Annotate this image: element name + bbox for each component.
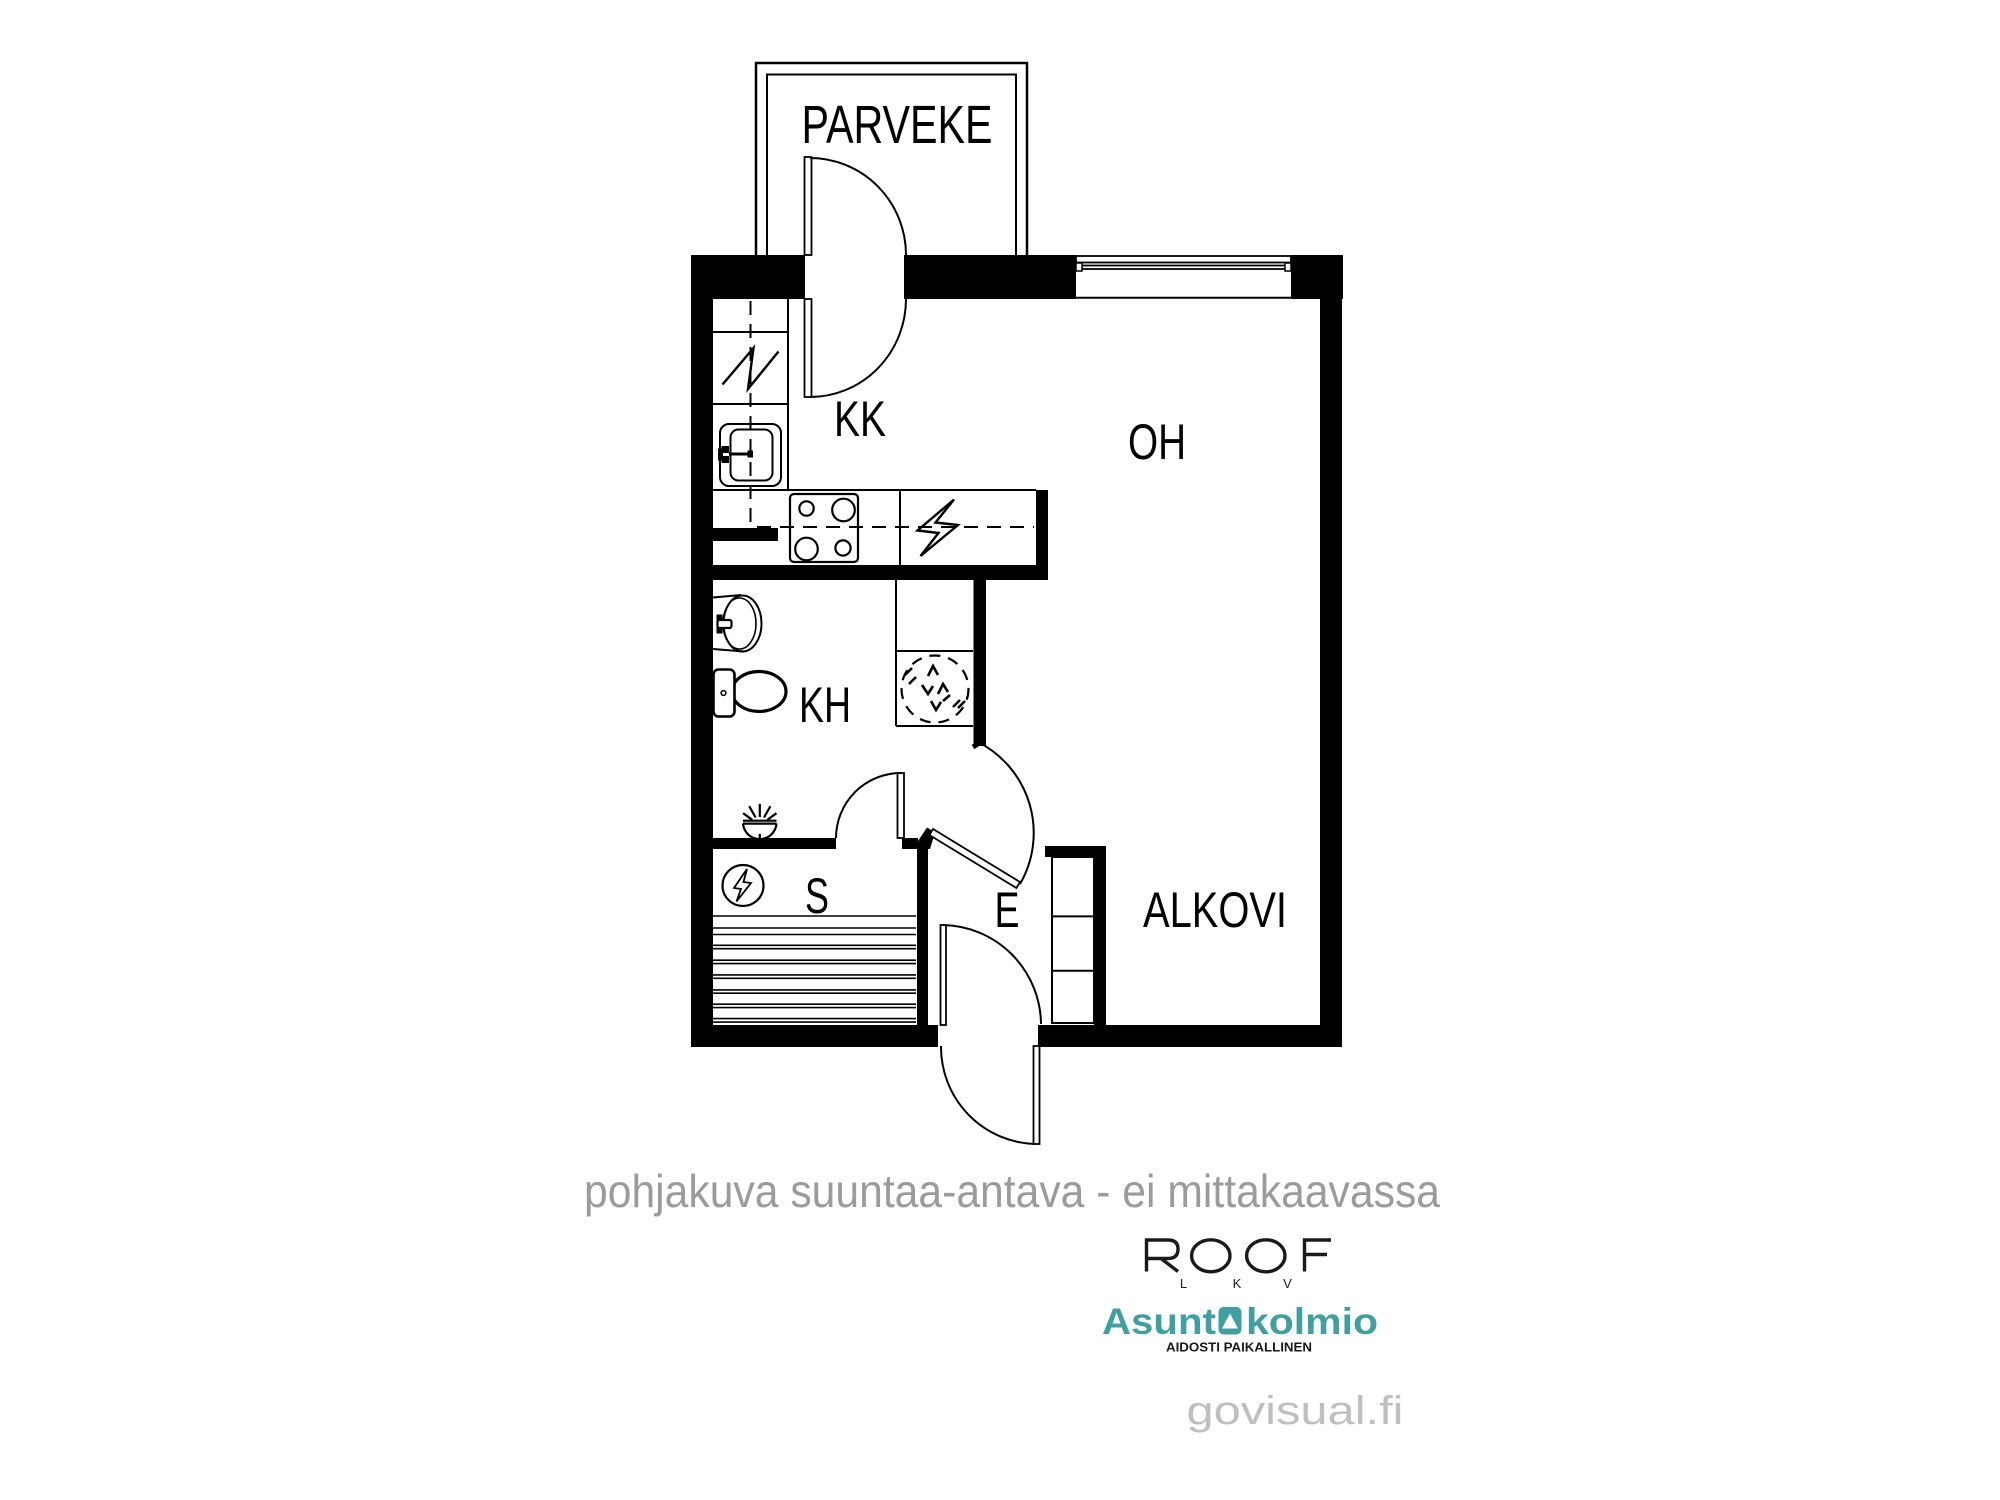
svg-text:AIDOSTI PAIKALLINEN: AIDOSTI PAIKALLINEN (1166, 1341, 1312, 1355)
svg-text:PARVEKE: PARVEKE (802, 95, 993, 155)
svg-text:OH: OH (1128, 414, 1186, 470)
svg-text:V: V (1283, 1276, 1292, 1291)
svg-text:KH: KH (799, 677, 851, 733)
svg-text:L: L (1180, 1276, 1187, 1291)
svg-text:pohjakuva suuntaa-antava - ei: pohjakuva suuntaa-antava - ei mittakaava… (584, 1165, 1440, 1217)
svg-text:ALKOVI: ALKOVI (1143, 882, 1287, 938)
svg-text:govisual.fi: govisual.fi (1187, 1389, 1404, 1433)
svg-text:E: E (995, 882, 1020, 938)
svg-text:Asunt: Asunt (1102, 1301, 1216, 1342)
svg-text:KK: KK (834, 391, 886, 447)
svg-text:kolmio: kolmio (1246, 1301, 1378, 1342)
svg-text:K: K (1233, 1276, 1242, 1291)
